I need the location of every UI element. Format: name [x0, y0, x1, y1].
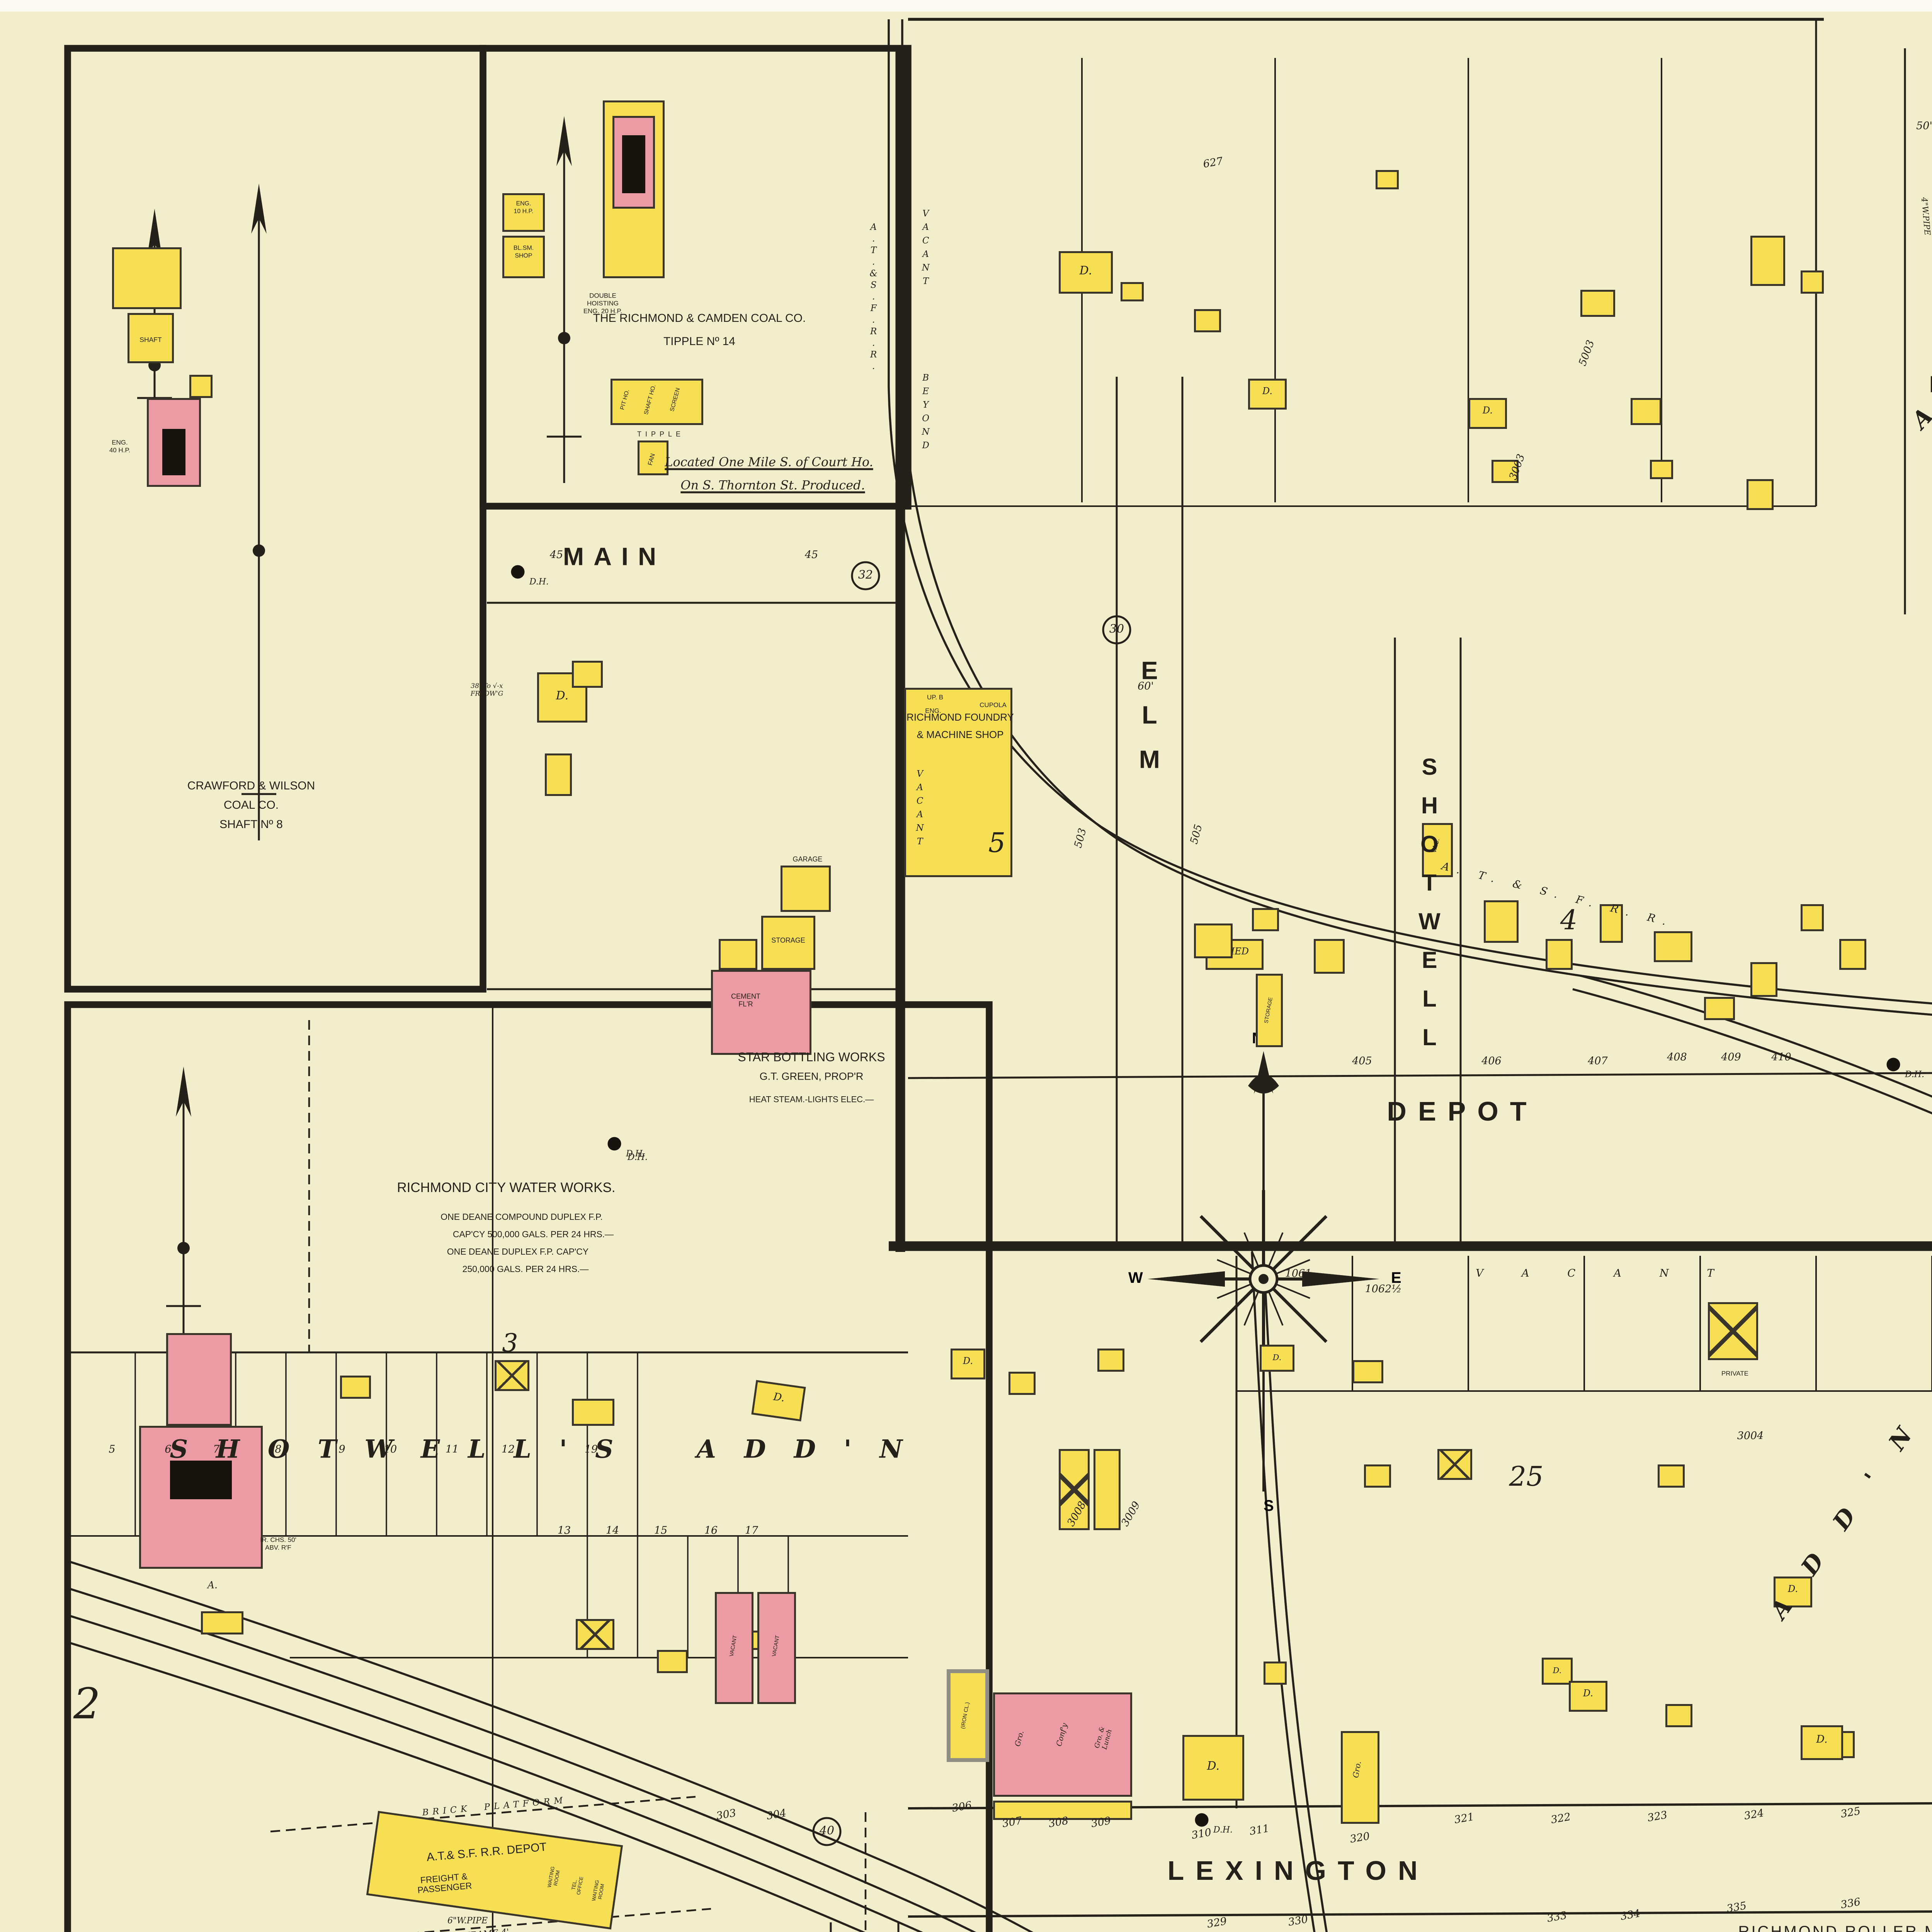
map-label: STAR BOTTLING WORKS — [738, 1052, 885, 1066]
lot-or-block-number: 25 — [1509, 1463, 1543, 1493]
lot-or-block-number: 405 — [1352, 1056, 1372, 1068]
svg-text:E: E — [1391, 1269, 1401, 1286]
map-label: G.T. GREEN, PROP'R — [760, 1072, 864, 1084]
lot-or-block-number: 1062½ — [1365, 1284, 1402, 1296]
map-label: STORAGE — [771, 937, 805, 945]
lot-or-block-number: 12 — [502, 1445, 515, 1457]
map-label: RICHMOND FOUNDRY — [906, 715, 1014, 726]
lot-or-block-number: 15 — [654, 1526, 667, 1538]
lot-or-block-number: 8 — [275, 1445, 281, 1457]
svg-text:S: S — [1264, 1497, 1274, 1514]
building — [1801, 270, 1824, 294]
map-label: CEMENT FL'R — [731, 993, 760, 1009]
map-label: 250,000 GALS. PER 24 HRS.— — [463, 1264, 589, 1274]
lot-or-block-number: 4 — [1560, 906, 1578, 937]
double-hydrant-dot — [1887, 1058, 1900, 1071]
circled-distance-marker: 40 — [813, 1817, 842, 1846]
map-label: 6"W.PIPE — [447, 1917, 488, 1927]
double-hydrant-dot — [1195, 1813, 1209, 1827]
map-label: Located One Mile S. of Court Ho. — [665, 457, 873, 471]
building — [622, 135, 645, 193]
map-geometry: NWES — [0, 0, 1932, 1932]
double-hydrant-dot — [511, 565, 525, 579]
lot-or-block-number: 9 — [338, 1445, 345, 1457]
building — [1658, 1464, 1685, 1488]
dh-label: D.H. — [626, 1150, 645, 1160]
building-d: D. — [951, 1349, 985, 1379]
map-label: On S. Thornton St. Produced. — [680, 480, 865, 494]
map-label: BEYOND — [920, 375, 930, 456]
building — [572, 1399, 614, 1426]
lot-or-block-number: 5 — [109, 1445, 115, 1457]
building — [166, 1333, 232, 1426]
map-label: CAP'CY 500,000 GALS. PER 24 HRS.— — [453, 1230, 614, 1240]
building — [1194, 923, 1233, 958]
lot-or-block-number: 2 — [73, 1682, 100, 1730]
lot-or-block-number: 17 — [745, 1526, 758, 1538]
building — [1650, 460, 1673, 479]
lot-or-block-number: 406 — [1481, 1056, 1501, 1068]
building — [1376, 170, 1399, 189]
double-hydrant-dot — [608, 1137, 621, 1151]
building — [1194, 309, 1221, 332]
building — [1364, 1464, 1391, 1488]
map-label: SHAFT Nº 8 — [219, 820, 283, 833]
building — [1094, 1449, 1121, 1530]
street-or-addition-label: MAIN — [563, 544, 666, 573]
building — [1009, 1372, 1036, 1395]
building — [1252, 908, 1279, 931]
pipe-and-platform-dashes — [193, 54, 1932, 1932]
map-label: A.T.&S.F.R.R. — [868, 224, 878, 375]
lot-or-block-number: 3 — [502, 1332, 518, 1361]
map-label: 38' To √-x FR. DW'G — [471, 684, 503, 699]
map-label: ONE DEANE DUPLEX F.P. CAP'CY — [447, 1247, 588, 1257]
map-label: THE RICHMOND & CAMDEN COAL CO. — [593, 314, 806, 327]
building — [1580, 290, 1615, 317]
dh-label: D.H. — [529, 578, 549, 588]
building — [189, 375, 213, 398]
map-label: HEAT STEAM.-LIGHTS ELEC.— — [749, 1094, 874, 1104]
building-d: D. — [1182, 1735, 1244, 1801]
lot-or-block-number: 14 — [606, 1526, 619, 1538]
lot-or-block-number: 408 — [1667, 1053, 1687, 1065]
building-d: D. — [1468, 398, 1507, 429]
building — [162, 429, 185, 475]
building — [657, 1650, 688, 1673]
lot-or-block-number: 45 — [805, 550, 818, 562]
building — [1750, 962, 1777, 997]
building — [1264, 1662, 1287, 1685]
map-label: TIPPLE — [637, 431, 684, 439]
building-d: D. — [1801, 1725, 1843, 1760]
building — [1631, 398, 1662, 425]
hoisting-derrick-symbols — [137, 116, 582, 1352]
lot-or-block-number: 407 — [1588, 1056, 1607, 1068]
lot-or-block-number: 5 — [988, 829, 1006, 860]
lot-or-block-number: 16 — [704, 1526, 718, 1538]
circled-distance-marker: 30 — [1102, 616, 1131, 645]
map-label: ENG. — [925, 709, 941, 717]
building — [1708, 1302, 1758, 1360]
building — [1801, 904, 1824, 931]
lot-or-block-number: 13 — [558, 1526, 571, 1538]
map-label: COAL CO. — [224, 801, 279, 814]
building — [495, 1360, 529, 1391]
lot-or-block-number: 1061 — [1285, 1269, 1312, 1281]
lot-or-block-number: 6 — [165, 1445, 171, 1457]
map-label: CRAWFORD & WILSON — [187, 782, 315, 795]
map-label: VACANT — [915, 771, 925, 852]
building — [1546, 939, 1573, 970]
map-label: VACANT — [920, 211, 930, 292]
map-label: DOUBLE HOISTING ENG. 20 H.P. — [583, 294, 622, 317]
lot-or-block-number: 409 — [1721, 1053, 1741, 1065]
building — [576, 1619, 614, 1650]
map-label: GARAGE — [793, 856, 823, 864]
building-d: D. — [1260, 1345, 1294, 1372]
building — [1839, 939, 1866, 970]
street-or-addition-label: SHOTWELL — [1415, 753, 1441, 1063]
paper-edge-top — [0, 0, 1932, 12]
building — [201, 1611, 243, 1634]
building — [1704, 997, 1735, 1020]
building — [1747, 479, 1774, 510]
building — [340, 1376, 371, 1399]
dh-label: D.H. — [1905, 1071, 1924, 1081]
building — [719, 939, 757, 970]
building — [1437, 1449, 1472, 1480]
map-label: V A C A N T — [1476, 1269, 1731, 1281]
railroad-tracks — [68, 19, 1932, 1932]
building — [1484, 900, 1519, 943]
building — [545, 753, 572, 796]
building — [1121, 282, 1144, 301]
map-label: & MACHINE SHOP — [917, 732, 1004, 744]
circled-distance-marker: 32 — [851, 561, 880, 590]
svg-text:W: W — [1128, 1269, 1143, 1286]
building-d: D. — [1059, 251, 1113, 294]
building — [1654, 931, 1692, 962]
building — [711, 970, 811, 1055]
map-label: ENG. 10 H.P. — [514, 202, 533, 216]
map-label: SHAFT — [139, 336, 162, 344]
map-label: RICHMOND CITY WATER WORKS. — [397, 1182, 615, 1198]
map-label: CUPOLA — [980, 703, 1007, 711]
lot-or-block-number: 50' — [1916, 121, 1932, 133]
lot-or-block-number: 10 — [384, 1445, 397, 1457]
building — [781, 866, 831, 912]
map-label: IR. CHS. 50' ABV. R'F — [260, 1538, 296, 1553]
street-or-addition-label: ELM — [1133, 656, 1162, 789]
building — [1665, 1704, 1692, 1727]
map-label: PRIVATE — [1721, 1372, 1748, 1379]
lot-or-block-number: 45 — [550, 550, 563, 562]
map-label: ENG. 40 H.P. — [109, 440, 130, 456]
map-label: BL.SM. SHOP — [514, 246, 534, 260]
building-d: D. — [751, 1380, 806, 1421]
lot-or-block-number: 19 — [585, 1445, 598, 1457]
map-label: RICHMOND ROLLER MILLS — [1738, 1923, 1932, 1932]
map-label: TIPPLE Nº 14 — [663, 337, 735, 350]
building — [1314, 939, 1345, 974]
map-label: A. — [207, 1583, 218, 1594]
building-d: D. — [1542, 1658, 1573, 1685]
street-or-addition-label: LEXINGTON — [1167, 1855, 1429, 1886]
building — [1750, 236, 1785, 286]
building — [1352, 1360, 1383, 1383]
building — [1097, 1349, 1124, 1372]
lot-or-block-number: 7 — [213, 1445, 219, 1457]
map-label: ONE DEANE COMPOUND DUPLEX F.P. — [440, 1212, 603, 1222]
building-d: D. — [1569, 1681, 1607, 1712]
lot-or-block-number: 3004 — [1737, 1431, 1764, 1443]
map-label: UP. B — [927, 696, 943, 703]
lot-or-block-number: 11 — [446, 1445, 459, 1457]
compass-rose-icon: NWES — [1128, 1030, 1401, 1514]
sanborn-map-sheet: NWES SHEDD.D.D.D.D.D.D.D.D.D.D.D.D.D.D.D… — [0, 0, 1932, 1932]
lot-or-block-number: 410 — [1771, 1053, 1791, 1065]
lot-or-block-number: 60' — [1138, 682, 1154, 694]
building-d: D. — [1248, 379, 1287, 410]
building — [572, 661, 603, 688]
street-or-addition-label: DEPOT — [1387, 1095, 1538, 1126]
building — [112, 247, 182, 309]
dh-label: D.H. — [1213, 1827, 1233, 1836]
